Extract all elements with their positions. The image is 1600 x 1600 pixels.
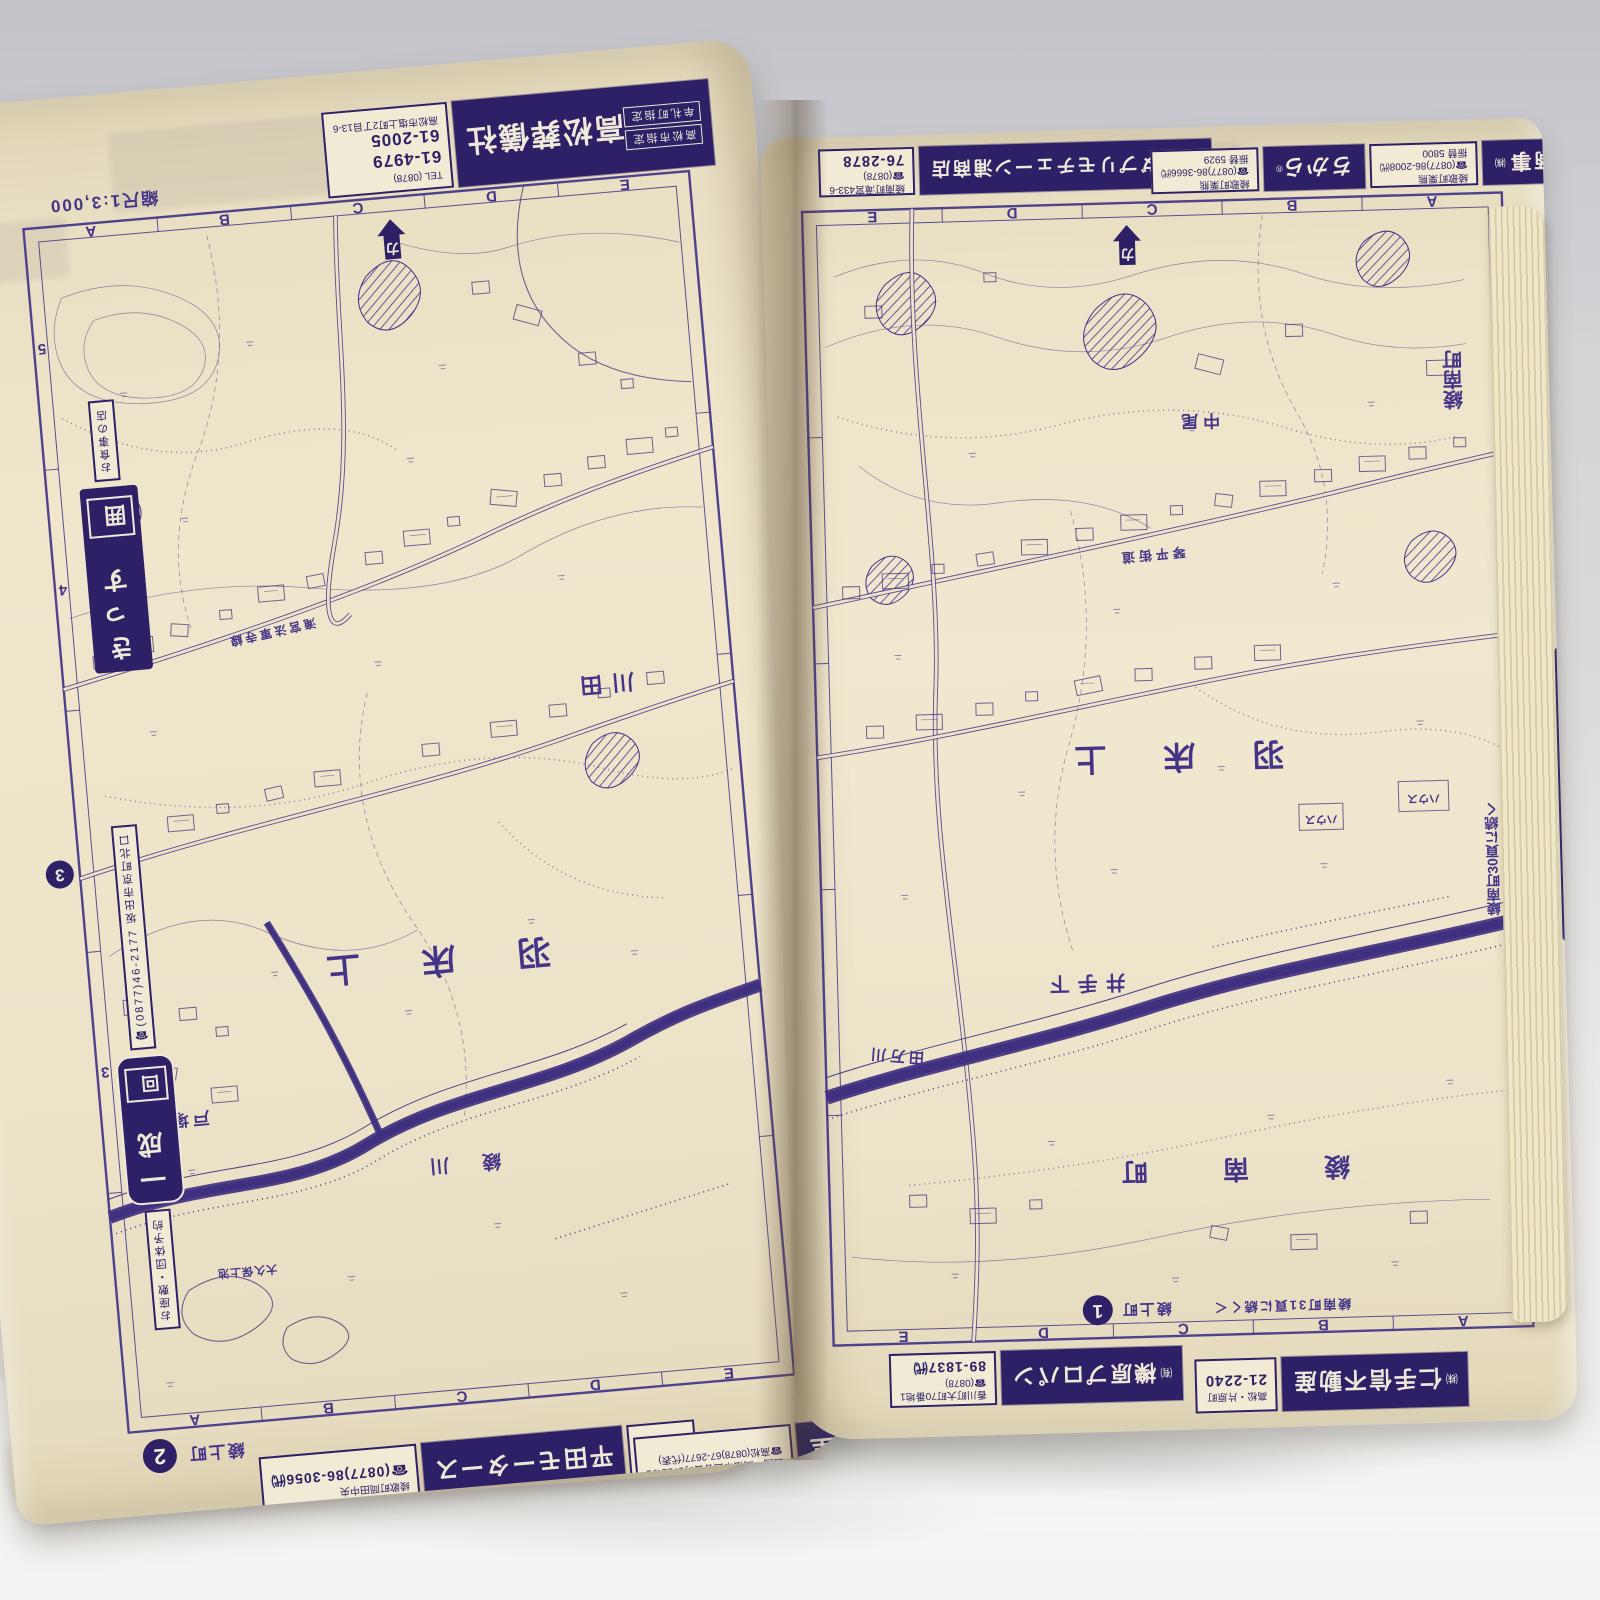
ad-address: 坂出市京町北口 <box>118 832 138 924</box>
grid-letter: A <box>189 1410 201 1428</box>
vertical-label-text: 綾南町 <box>1442 350 1467 412</box>
right-page[interactable]: E D C B A E D C B A 4 3 2 カ <box>760 117 1578 1440</box>
ad-name-text: 花勢 <box>1572 848 1578 891</box>
scale-label: 縮尺1:3,000 <box>48 187 159 216</box>
page-number: 2 <box>153 1443 167 1470</box>
ad-furikae: 振替 5929 <box>1161 151 1249 166</box>
ad-fudosan: ㈱ 仁手信不動産 高松・片原町 21-2240 <box>1194 1352 1468 1414</box>
ad-chikara-left-contact: 綾歌町栗熊 ☎(0877)86-3666㈹ 振替 5929 <box>1150 147 1259 194</box>
ad-name-text: きっす <box>100 558 139 662</box>
ad-company-name: 仁手信不動産 <box>1292 1363 1443 1401</box>
ad-fudosan-contact: 高松・片原町 21-2240 <box>1194 1357 1278 1413</box>
ad-kabushiki-mark: ㈱ <box>1444 1371 1458 1388</box>
ad-yugen-mark: ㈲ <box>1158 1365 1172 1382</box>
grid-letter: B <box>1317 1316 1328 1333</box>
edge-note-text: 綾南町30頁に続く <box>1483 802 1502 917</box>
grid-letter: C <box>352 199 364 217</box>
left-page[interactable]: A B C D E A B C D E 5 4 3 縮尺1:3,000 <box>0 37 871 1526</box>
ad-propane: ㈲ 櫟原プロパン 香川町大町70番地1 ☎(0878) 89-1837㈹ <box>889 1346 1183 1408</box>
ad-kissu-tagline: お食事の店 <box>88 399 121 482</box>
ad-issei-note: お座敷・団体予約 <box>144 1209 180 1331</box>
book-spine-shadow <box>756 100 828 1460</box>
grid-letters-bottom: A B C D E <box>189 1364 735 1429</box>
area-label-hayuka-kami: 羽 床 上 <box>299 931 552 991</box>
grid-letter: D <box>1038 1324 1049 1341</box>
grid-letter: E <box>867 208 877 225</box>
ad-issei-contact: ☎(0877)46-2177 坂出市京町北口 <box>111 824 157 1051</box>
river-label-ayagawa: 綾 川 <box>415 1149 502 1179</box>
page-arrow-marker: カ <box>1113 225 1142 266</box>
river-label-tamagawa: 田万川 <box>867 1045 925 1066</box>
ad-kissu-name: きっす 囲 <box>80 484 154 674</box>
ad-chikara-right-contact: 綾歌町栗熊 ☎(0877)86-2008㈹ 振替 5800 <box>1369 141 1478 188</box>
ad-honda-contact: 綾南町滝宮433-6 ☎(0878) 76-2878 <box>818 147 915 198</box>
ad-address: 綾歌町栗熊 <box>1161 176 1249 191</box>
grid-letter: B <box>1286 196 1297 213</box>
ad-name-text: 一成 <box>135 1123 171 1193</box>
area-label-ayanami-vertical: 綾南町 <box>1442 350 1467 412</box>
ad-tel: 21-2240 <box>1205 1369 1268 1389</box>
page-number: 1 <box>1092 1299 1103 1321</box>
ad-tel-label: ☎(0878) <box>900 1375 987 1390</box>
adjacent-area-label: 綾上町 <box>187 1439 246 1469</box>
grid-letter: C <box>456 1387 468 1405</box>
grid-letter: B <box>322 1399 334 1417</box>
area-label-ayanami-spaced: 綾 南 町 <box>1087 1151 1350 1188</box>
ad-tel: ☎(0878)(51)7635 <box>1570 654 1578 758</box>
ad-kasei-logo: 四 <box>1566 904 1578 933</box>
grid-letter: C <box>1146 200 1157 217</box>
grid-letters-bottom: E D C B A <box>898 1312 1469 1345</box>
ad-tag: 高松市指定 <box>625 124 703 151</box>
grid-letter: A <box>1457 1312 1468 1329</box>
ad-brand-name: ちから <box>1282 151 1355 185</box>
grid-letter: A <box>1426 192 1437 209</box>
grid-letter: E <box>723 1364 734 1382</box>
right-map-canvas: E D C B A E D C B A 4 3 2 カ <box>760 117 1578 1440</box>
ad-tel: ☎(0877)86-2008㈹ <box>1380 157 1468 172</box>
area-label-nakao: 中尾 <box>1176 410 1221 431</box>
area-label-kawata: 川田 <box>569 669 636 700</box>
grid-letter: A <box>85 222 97 240</box>
ad-furikae: 振替 5800 <box>1379 145 1467 160</box>
continuation-number: 3 <box>54 864 65 885</box>
ad-address: 綾歌町栗熊 <box>1380 170 1468 185</box>
grid-letter: E <box>898 1327 908 1344</box>
edge-continuation-note: 綾南町30頁に続く <box>1483 802 1502 917</box>
ad-address: 高松市今新町 <box>1573 767 1578 839</box>
ad-sogisha-contact: TEL (0878) 61-4979 61-2005 高松市塩上町2丁目13-6 <box>321 102 454 199</box>
ad-fudosan-name: ㈱ 仁手信不動産 <box>1281 1352 1468 1411</box>
ad-kissu-logo: 囲 <box>87 495 136 539</box>
page-arrow-marker: カ <box>376 218 407 260</box>
area-label-ideshimo: 井手下 <box>1041 970 1126 996</box>
ad-tel-label: ☎(0878) <box>829 168 905 183</box>
ad-kissu: きっす 囲 お食事の店 <box>17 393 209 679</box>
arrow-char: カ <box>1120 245 1135 262</box>
grid-letter: D <box>1006 204 1017 221</box>
area-label-hayuka-kami: 羽 床 上 <box>1050 736 1285 779</box>
ad-tel: 89-1837㈹ <box>899 1357 986 1377</box>
ad-tel: ☎(0877)46-2177 <box>127 928 149 1042</box>
grid-letter: D <box>485 187 497 205</box>
ad-address: 綾南町滝宮433-6 <box>829 181 905 196</box>
grid-letter: C <box>1178 1320 1189 1337</box>
adjacent-area-label: 綾上町 <box>1121 1298 1173 1320</box>
river-tamagawa <box>822 894 1527 1119</box>
ad-chikara-logo: ちから ® <box>1263 144 1365 191</box>
ad-tag: 牟礼町指定 <box>623 101 701 128</box>
ad-issei-logo: 回 <box>124 1065 169 1103</box>
ad-address: 高松・片原町 <box>1205 1388 1267 1402</box>
ad-kabushiki-mark: ㈱ <box>1492 154 1505 170</box>
greenhouse-label: ハウス <box>1305 812 1338 826</box>
ad-tel: 76-2878 <box>828 149 904 170</box>
ad-address: 香川町大町70番地1 <box>900 1387 987 1402</box>
ad-company-name: 櫟原プロパン <box>1011 1358 1157 1394</box>
ad-company-name: 高松葬儀社 <box>463 108 626 166</box>
ad-issei-name: 一成 回 <box>115 1053 186 1207</box>
registered-mark: ® <box>1274 164 1283 174</box>
grid-letter: D <box>589 1375 601 1393</box>
grid-letter: E <box>619 175 630 193</box>
greenhouse-label: ハウス <box>1407 791 1440 805</box>
road-label: 琴平街道 <box>1117 544 1186 566</box>
grid-number: 5 <box>37 340 47 358</box>
ad-propane-contact: 香川町大町70番地1 ☎(0878) 89-1837㈹ <box>889 1351 997 1408</box>
ad-propane-name: ㈲ 櫟原プロパン <box>1001 1346 1184 1405</box>
bottom-continuation-note: 綾南町31頁に続く＜ <box>1213 1295 1352 1318</box>
ad-tel: ☎(0877)86-3666㈹ <box>1161 163 1249 178</box>
grid-letter: B <box>218 210 230 228</box>
